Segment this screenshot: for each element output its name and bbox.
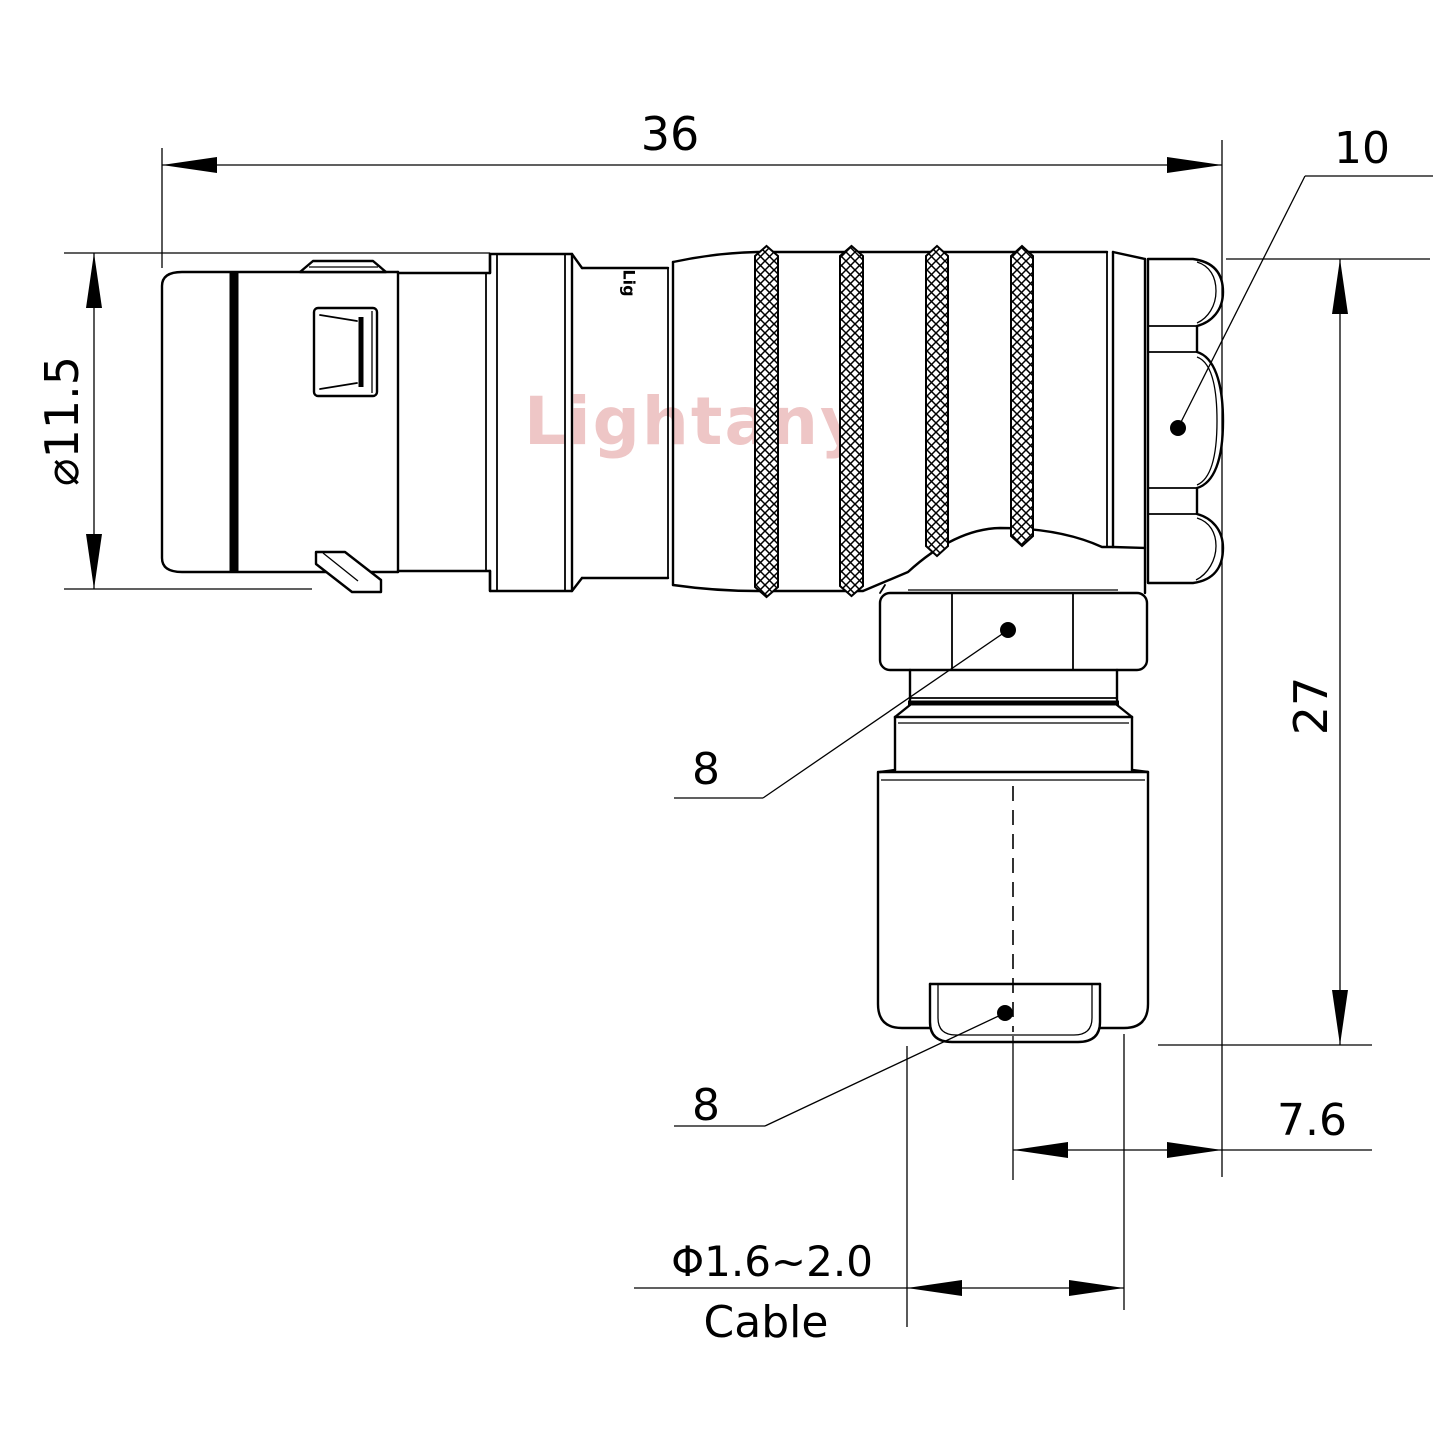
- key-tab: [300, 261, 386, 272]
- latch-window: [314, 308, 377, 396]
- strain-relief-collar: [880, 717, 1148, 772]
- drawing-canvas: Lightany: [0, 0, 1440, 1440]
- body-logo-mark: Lig: [620, 269, 639, 296]
- coupling-ring: [490, 254, 582, 591]
- dim-exit-offset: 7.6: [1013, 1036, 1372, 1180]
- dim-front-diameter: ⌀11.5: [35, 253, 490, 589]
- front-sleeve: [398, 273, 490, 571]
- dim-cap-width-label: 10: [1334, 123, 1390, 174]
- rear-flange: [1113, 252, 1145, 593]
- gland-neck: [895, 670, 1132, 717]
- bayonet-slot: [316, 552, 381, 592]
- dim-front-diameter-label: ⌀11.5: [35, 356, 89, 486]
- end-cap-scallop-lines: [1148, 262, 1217, 580]
- dim-cap-width-leader: 10: [1170, 123, 1433, 436]
- leader-dot-cap: [1170, 420, 1186, 436]
- leader-dot-nut: [1000, 622, 1016, 638]
- leader-dot-bushing: [997, 1005, 1013, 1021]
- rear-shell: [673, 252, 1113, 591]
- leader-bushing-label: 8: [692, 1080, 720, 1131]
- cable-bushing: [930, 984, 1100, 1042]
- end-cap: [1148, 259, 1223, 583]
- leader-nut-label: 8: [692, 744, 720, 795]
- connector-drawing-svg: Lig: [0, 0, 1440, 1440]
- dim-cable-word-label: Cable: [704, 1297, 829, 1348]
- knurl-band-2: [840, 246, 863, 596]
- dim-overall-height: 27: [1158, 259, 1430, 1045]
- knurl-band-3: [926, 246, 948, 556]
- dim-overall-height-label: 27: [1284, 677, 1338, 736]
- leader-bushing: 8: [674, 1005, 1013, 1131]
- knurl-band-1: [755, 246, 778, 597]
- dim-overall-length-label: 36: [641, 107, 700, 161]
- mid-barrel: Lig: [582, 268, 668, 578]
- dim-exit-offset-label: 7.6: [1277, 1095, 1347, 1146]
- dim-cable-diameter-label: Φ1.6~2.0: [671, 1237, 873, 1286]
- knurl-band-4: [1011, 246, 1033, 546]
